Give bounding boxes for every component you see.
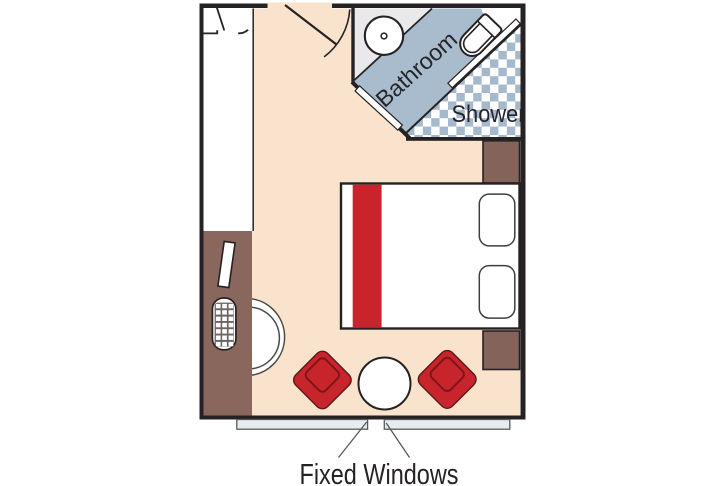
svg-text:Fixed Windows: Fixed Windows	[300, 459, 459, 486]
svg-text:Shower: Shower	[452, 101, 526, 128]
